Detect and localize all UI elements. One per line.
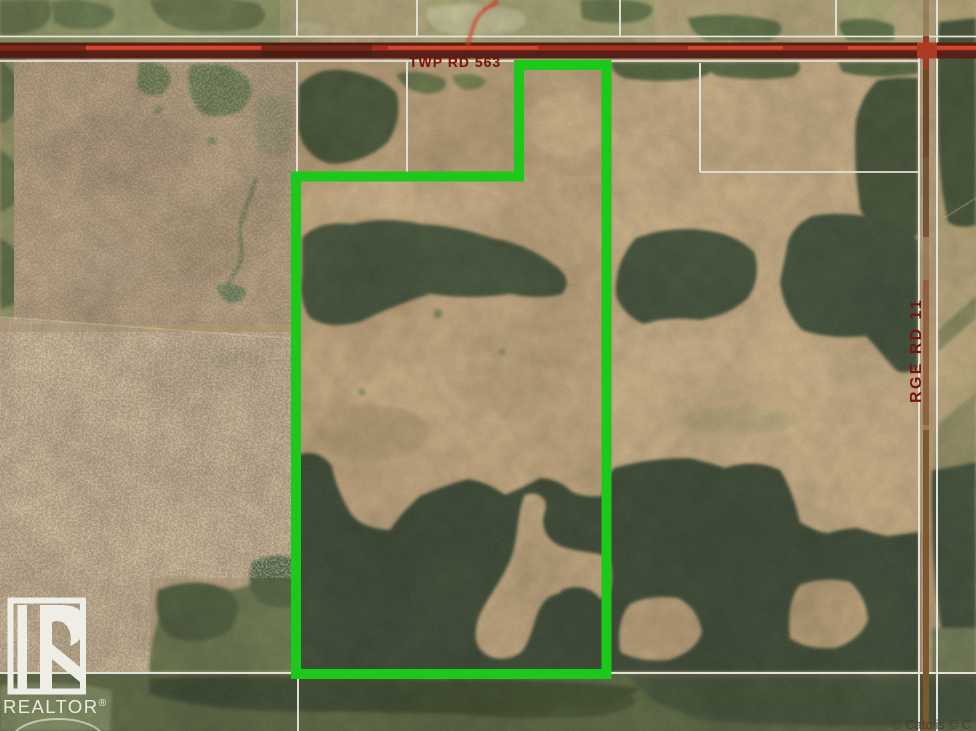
svg-text:© Catolis © C: © Catolis © C: [892, 717, 971, 731]
svg-text:TWP RD 563: TWP RD 563: [409, 54, 501, 70]
svg-text:RGE RD 11: RGE RD 11: [908, 298, 925, 403]
svg-text:REALTOR®: REALTOR®: [3, 696, 108, 717]
